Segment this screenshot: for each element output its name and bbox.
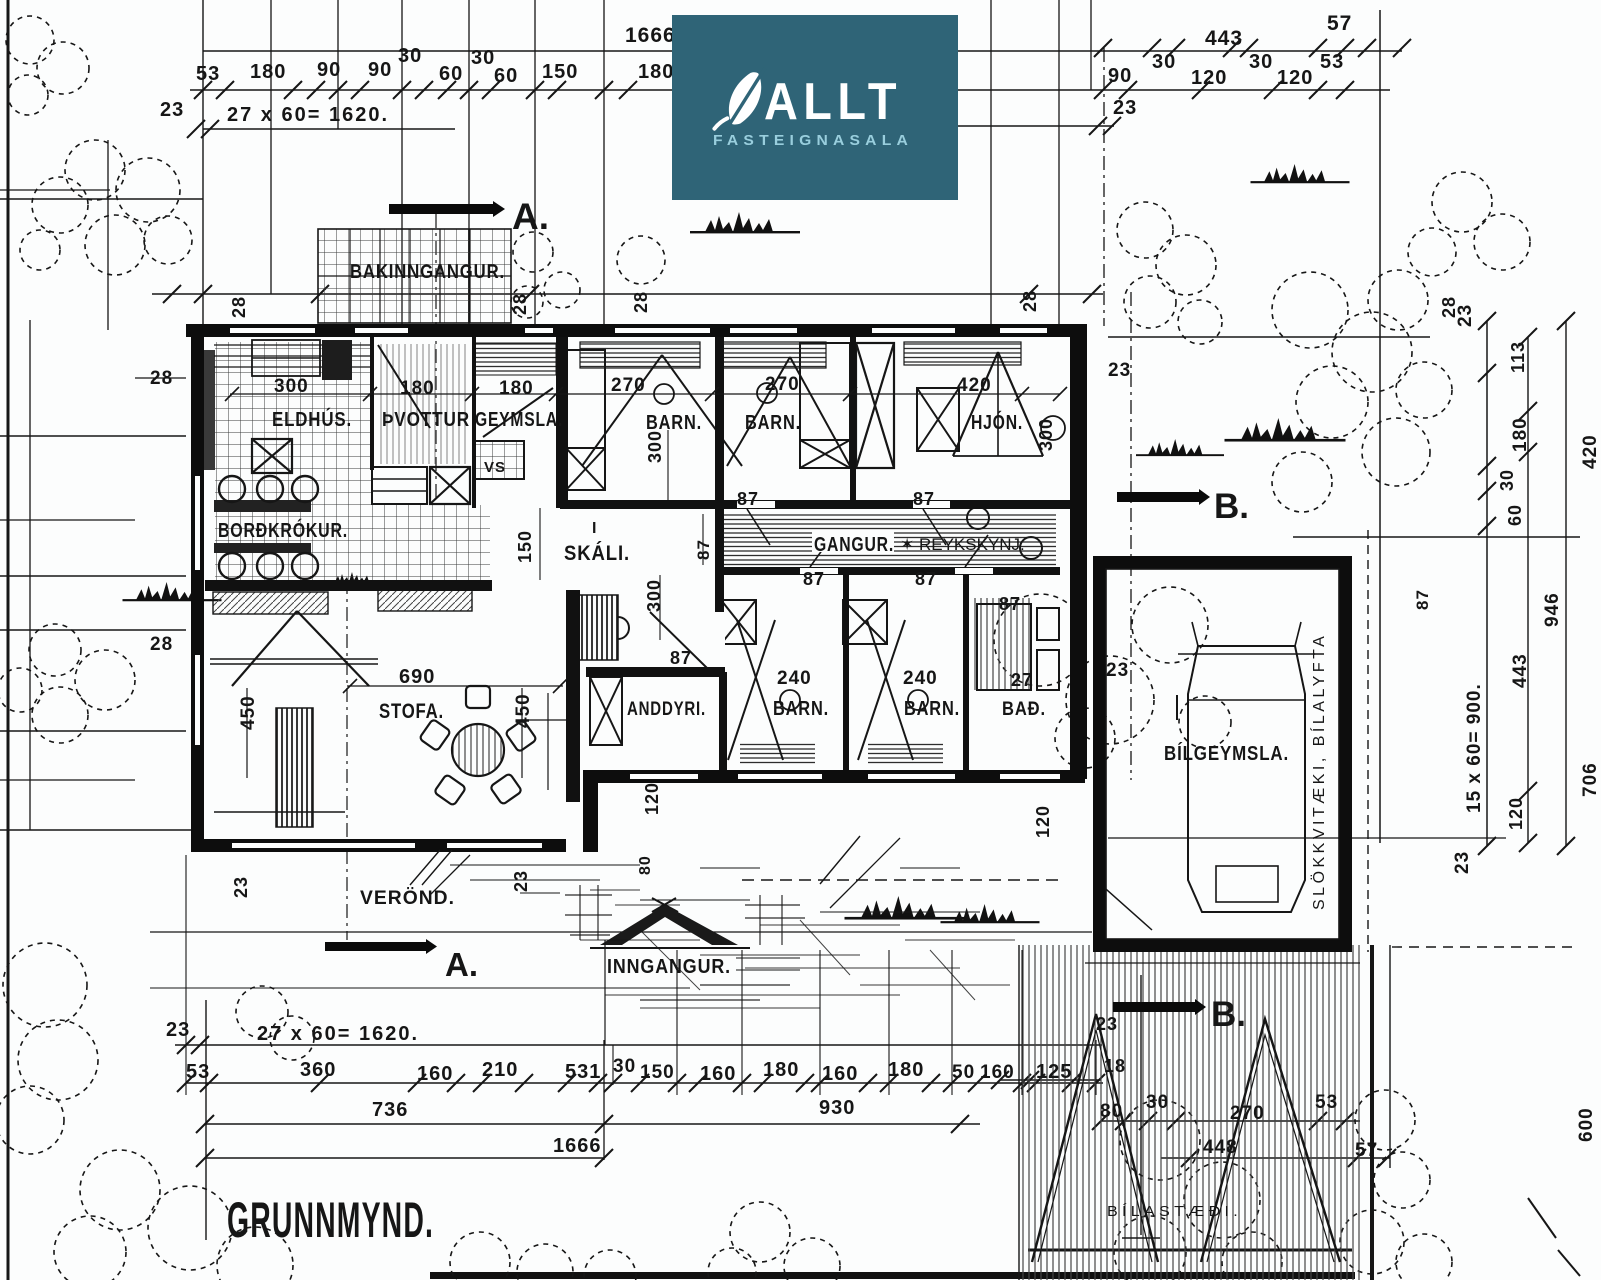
svg-text:300: 300 — [1036, 418, 1056, 451]
svg-text:600: 600 — [1576, 1107, 1597, 1142]
svg-text:300: 300 — [644, 579, 664, 612]
svg-text:87: 87 — [913, 489, 935, 509]
svg-text:28: 28 — [150, 368, 173, 389]
svg-text:113: 113 — [1508, 341, 1528, 373]
svg-text:GEYMSLA.: GEYMSLA. — [475, 409, 563, 431]
svg-text:30: 30 — [1146, 1092, 1169, 1113]
svg-text:443: 443 — [1510, 653, 1531, 688]
svg-text:A.: A. — [512, 196, 549, 237]
svg-text:80: 80 — [637, 855, 654, 875]
svg-text:80: 80 — [1100, 1101, 1123, 1122]
svg-text:23: 23 — [1106, 660, 1129, 681]
svg-text:930: 930 — [819, 1097, 855, 1119]
svg-text:531: 531 — [565, 1061, 601, 1083]
svg-text:87: 87 — [670, 648, 692, 668]
svg-text:18: 18 — [1104, 1056, 1126, 1076]
svg-text:160: 160 — [417, 1063, 453, 1085]
svg-text:BARN.: BARN. — [745, 412, 801, 434]
svg-text:VERÖND.: VERÖND. — [360, 888, 455, 909]
svg-text:60: 60 — [494, 65, 518, 87]
svg-text:30: 30 — [613, 1056, 636, 1077]
svg-text:87: 87 — [694, 539, 713, 560]
svg-text:420: 420 — [957, 375, 992, 396]
svg-text:270: 270 — [1230, 1103, 1265, 1124]
svg-text:BAKINNGANGUR.: BAKINNGANGUR. — [350, 262, 505, 283]
svg-text:180: 180 — [499, 378, 534, 399]
svg-text:180: 180 — [763, 1059, 799, 1081]
svg-text:690: 690 — [399, 666, 435, 688]
svg-text:28: 28 — [631, 291, 651, 313]
svg-text:ELDHÚS.: ELDHÚS. — [272, 407, 352, 431]
svg-text:210: 210 — [482, 1059, 518, 1081]
svg-text:A.: A. — [445, 946, 478, 983]
svg-text:BARN.: BARN. — [904, 698, 960, 720]
svg-text:87: 87 — [803, 569, 825, 589]
svg-text:STOFA.: STOFA. — [379, 700, 444, 723]
svg-text:HJÓN.: HJÓN. — [971, 410, 1023, 434]
svg-text:120: 120 — [1277, 67, 1313, 89]
svg-text:27 x 60= 1620.: 27 x 60= 1620. — [227, 104, 389, 126]
svg-text:VS: VS — [484, 459, 506, 476]
svg-text:300: 300 — [645, 430, 665, 463]
svg-text:443: 443 — [1205, 27, 1243, 50]
svg-text:125: 125 — [1036, 1061, 1072, 1083]
svg-text:ANDDYRI.: ANDDYRI. — [627, 699, 706, 720]
svg-text:160: 160 — [700, 1063, 736, 1085]
svg-text:28: 28 — [150, 634, 173, 655]
svg-text:57: 57 — [1327, 12, 1352, 35]
svg-text:✶ REYKSKYNJ.: ✶ REYKSKYNJ. — [900, 535, 1025, 554]
svg-text:28: 28 — [229, 296, 249, 318]
svg-text:GANGUR.: GANGUR. — [814, 534, 894, 556]
svg-text:180: 180 — [250, 61, 286, 83]
svg-text:28: 28 — [510, 293, 530, 315]
svg-text:87: 87 — [915, 569, 937, 589]
svg-text:23: 23 — [1113, 97, 1137, 119]
svg-text:27 x 60= 1620.: 27 x 60= 1620. — [257, 1023, 419, 1045]
svg-text:180: 180 — [400, 378, 435, 399]
svg-text:240: 240 — [903, 668, 938, 689]
svg-text:120: 120 — [1033, 805, 1053, 838]
svg-text:240: 240 — [777, 668, 812, 689]
svg-text:450: 450 — [513, 693, 534, 728]
svg-text:B.: B. — [1211, 995, 1246, 1034]
svg-text:ALLT: ALLT — [764, 73, 902, 131]
svg-text:180: 180 — [888, 1059, 924, 1081]
svg-text:160: 160 — [822, 1063, 858, 1085]
svg-text:GRUNNMYND.: GRUNNMYND. — [227, 1192, 434, 1248]
svg-text:87: 87 — [1413, 589, 1432, 610]
svg-text:23: 23 — [511, 870, 531, 892]
svg-text:1666: 1666 — [625, 24, 676, 47]
svg-text:706: 706 — [1580, 762, 1601, 797]
svg-text:360: 360 — [300, 1059, 336, 1081]
svg-text:30: 30 — [1249, 51, 1273, 73]
svg-text:27: 27 — [1011, 670, 1033, 690]
svg-text:90: 90 — [1108, 65, 1132, 87]
svg-text:736: 736 — [372, 1099, 408, 1121]
svg-text:150: 150 — [515, 530, 535, 563]
svg-text:30: 30 — [471, 47, 495, 69]
svg-text:53: 53 — [196, 63, 220, 85]
svg-text:57: 57 — [1355, 1140, 1378, 1161]
svg-text:23: 23 — [231, 876, 251, 898]
svg-text:BARN.: BARN. — [773, 698, 829, 720]
svg-text:87: 87 — [737, 489, 759, 509]
svg-text:BÍLASTÆÐI.: BÍLASTÆÐI. — [1107, 1203, 1242, 1220]
svg-text:23: 23 — [1108, 360, 1131, 381]
svg-text:INNGANGUR.: INNGANGUR. — [607, 956, 731, 978]
svg-text:B.: B. — [1214, 487, 1249, 526]
svg-text:23: 23 — [160, 99, 184, 121]
svg-text:23: 23 — [1452, 851, 1473, 874]
svg-text:60: 60 — [439, 63, 463, 85]
svg-text:53: 53 — [1320, 51, 1344, 73]
svg-text:420: 420 — [1580, 434, 1601, 469]
svg-text:23: 23 — [1096, 1014, 1118, 1034]
svg-text:180: 180 — [638, 61, 674, 83]
svg-text:160: 160 — [980, 1062, 1015, 1083]
svg-text:946: 946 — [1542, 592, 1563, 627]
svg-text:ÞVOTTUR: ÞVOTTUR — [382, 409, 470, 431]
svg-text:I: I — [592, 520, 597, 537]
svg-text:SLÖKKVITÆKI, BÍLALYFTA: SLÖKKVITÆKI, BÍLALYFTA — [1309, 633, 1328, 910]
svg-text:30: 30 — [1497, 469, 1517, 491]
svg-text:300: 300 — [274, 376, 309, 397]
svg-text:180: 180 — [1510, 417, 1531, 452]
svg-text:53: 53 — [1315, 1092, 1338, 1113]
svg-text:15 x 60= 900.: 15 x 60= 900. — [1464, 683, 1485, 813]
svg-text:FASTEIGNASALA: FASTEIGNASALA — [713, 132, 913, 149]
svg-text:150: 150 — [640, 1062, 675, 1083]
svg-text:28: 28 — [1020, 290, 1040, 312]
svg-text:30: 30 — [1152, 51, 1176, 73]
svg-text:120: 120 — [1191, 67, 1227, 89]
svg-text:60: 60 — [1505, 504, 1525, 526]
svg-text:450: 450 — [238, 695, 259, 730]
svg-text:1666: 1666 — [553, 1135, 602, 1157]
svg-text:23: 23 — [166, 1019, 190, 1041]
svg-text:BÍLGEYMSLA.: BÍLGEYMSLA. — [1164, 742, 1289, 765]
svg-text:90: 90 — [317, 59, 341, 81]
svg-text:448: 448 — [1203, 1137, 1238, 1158]
svg-text:23: 23 — [1455, 304, 1476, 327]
svg-text:50: 50 — [952, 1062, 975, 1083]
svg-text:270: 270 — [611, 375, 646, 396]
svg-text:53: 53 — [186, 1061, 210, 1083]
svg-text:120: 120 — [642, 782, 662, 815]
svg-text:270: 270 — [765, 374, 800, 395]
svg-text:150: 150 — [542, 61, 578, 83]
svg-text:87: 87 — [999, 594, 1021, 614]
svg-text:30: 30 — [398, 45, 422, 67]
svg-text:120: 120 — [1506, 797, 1526, 830]
svg-text:SKÁLI.: SKÁLI. — [564, 542, 630, 565]
svg-text:BAÐ.: BAÐ. — [1002, 699, 1046, 720]
svg-text:90: 90 — [368, 59, 392, 81]
svg-text:BORÐKRÓKUR.: BORÐKRÓKUR. — [218, 518, 348, 542]
